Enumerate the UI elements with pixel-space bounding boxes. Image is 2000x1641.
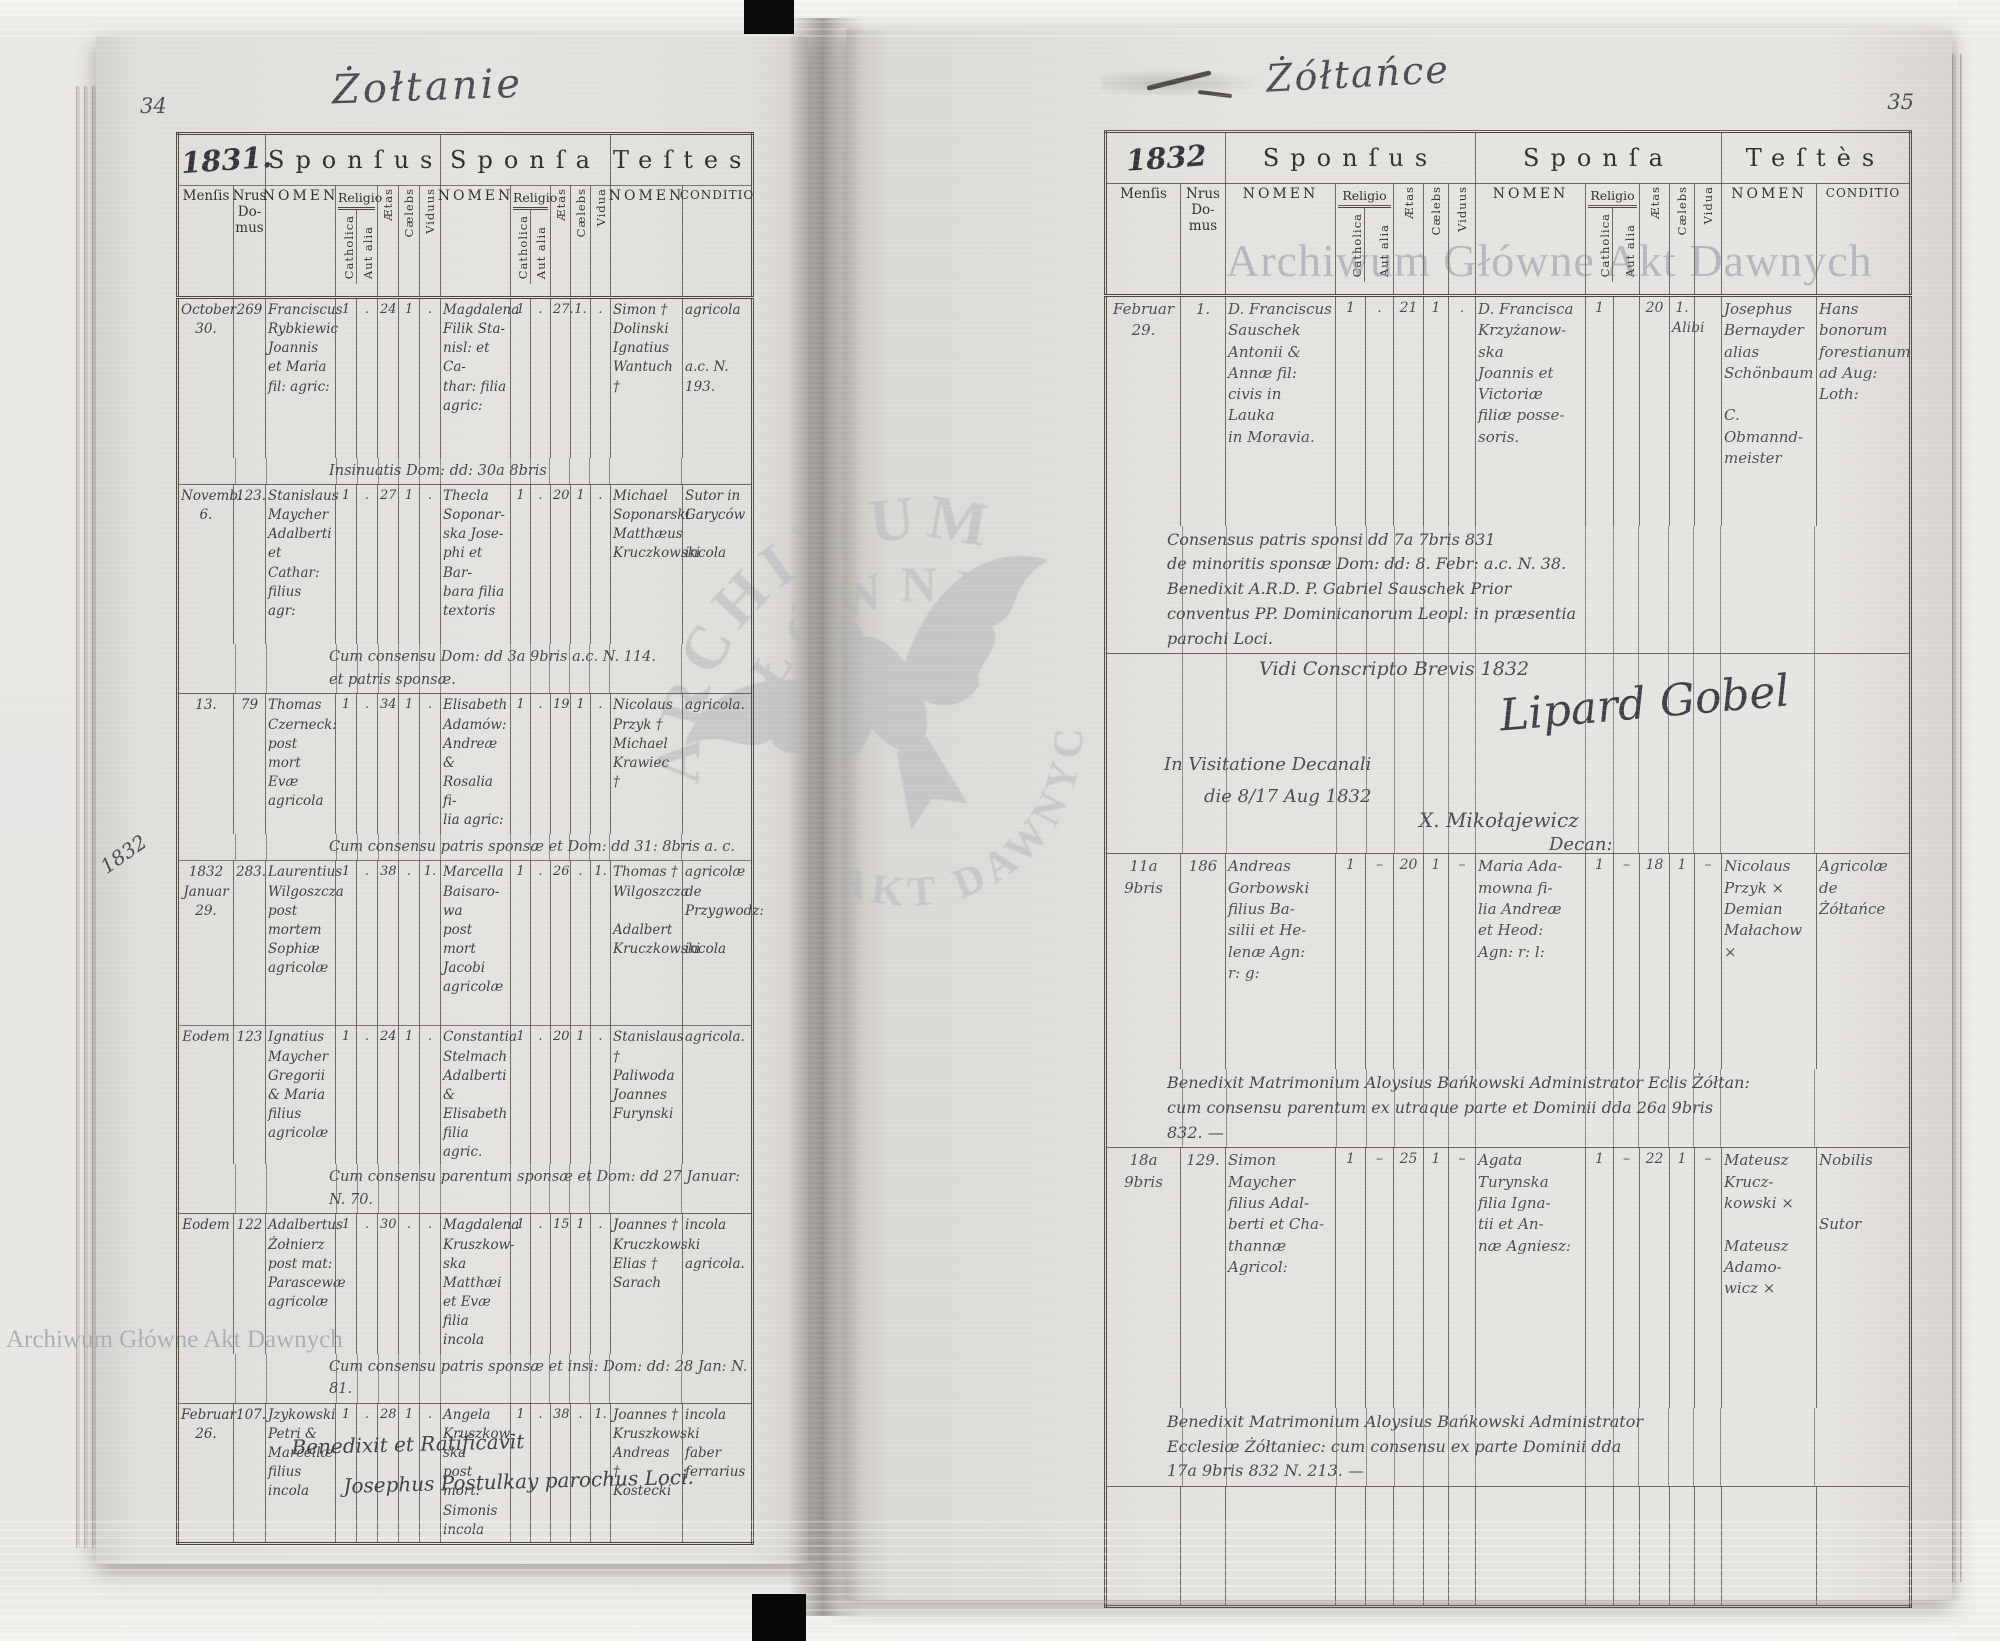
sponsus-autalia-cell: . (1366, 296, 1394, 526)
sponsa-catholica-cell: 1 (511, 484, 531, 644)
sponsus-nomen-cell: Franciscus Rybkiewic Joannis et Maria fi… (266, 298, 336, 458)
sponsa-caelebs-header: Cælebs (1670, 184, 1695, 296)
sponsus-viduus-cell: . (1449, 296, 1476, 526)
sponsa-vidua-cell: . (591, 484, 611, 644)
sponsus-group-header: Sponſus (266, 134, 441, 186)
sponsus-aetas-header: Ætas (378, 186, 399, 298)
testes-nomen-cell: Mateusz Krucz- kowski × Mateusz Adamo- w… (1722, 1148, 1817, 1408)
sponsa-aetas-cell: 20 (551, 1026, 571, 1165)
sponsa-caelebs-cell: 1 (571, 1026, 591, 1165)
sponsa-caelebs-cell: . (571, 861, 591, 1026)
testes-nomen-cell: Joannes † Kruczkowski Elias † Sarach (611, 1214, 683, 1354)
testes-nomen-cell: Josephus Bernayder alias Schönbaum C. Ob… (1722, 296, 1817, 526)
sponsa-caelebs-cell: 1 (571, 484, 591, 644)
sponsa-nomen-header: NOMEN (441, 186, 511, 298)
sponsa-autalia-cell: . (531, 484, 551, 644)
sponsa-aetas-cell: 20 (1640, 296, 1670, 526)
catholica-label: Catholica (1338, 208, 1364, 277)
sponsus-religio-header: Religio Catholica Aut alia (336, 186, 378, 298)
religio-label: Religio (1338, 186, 1391, 208)
sponsa-vidua-cell: – (1695, 1148, 1722, 1408)
group-header-row: 1832 Sponſus Sponſa Teſtès (1106, 132, 1911, 184)
sponsa-nomen-cell: Maria Ada- mowna fi- lia Andreæ et Heod:… (1476, 854, 1586, 1069)
conditio-header: CONDITIO (1817, 184, 1911, 296)
sponsa-catholica-cell: 1 (511, 1214, 531, 1354)
empty-ruled-rows (1106, 1487, 1911, 1607)
sponsus-caelebs-cell: 1 (399, 298, 420, 458)
sponsa-catholica-cell: 1 (511, 298, 531, 458)
book-page-edges-left (72, 86, 98, 1548)
sponsa-aetas-cell: 26 (551, 861, 571, 1026)
testes-group-header: Teſtes (611, 134, 753, 186)
entry-note-row: Cum consensu Dom: dd 3a 9bris a.c. N. 11… (178, 644, 753, 693)
entry-domus-cell: 129. (1181, 1148, 1226, 1408)
sponsa-autalia-cell: – (1614, 1148, 1640, 1408)
nrus-domus-header: Nrus Do- mus (234, 186, 266, 298)
sponsus-aetas-cell: 25 (1394, 1148, 1424, 1408)
catholica-label: Catholica (513, 210, 530, 279)
sponsus-nomen-cell: Adalbertus Żołnierz post mat: Parascewæ … (266, 1214, 336, 1354)
sponsus-autalia-cell: . (357, 694, 378, 834)
sponsa-nomen-cell: D. Francisca Krzyżanow- ska Joannis et V… (1476, 296, 1586, 526)
sponsa-nomen-cell: Constantia Stelmach Adalberti & Elisabet… (441, 1026, 511, 1165)
catholica-label: Catholica (338, 210, 356, 279)
sponsa-aetas-header: Ætas (551, 186, 571, 298)
sponsa-vidua-cell: . (591, 1214, 611, 1354)
sponsus-aetas-cell: 24 (378, 298, 399, 458)
sponsus-viduus-cell: . (420, 694, 441, 834)
entry-mensis-cell: October 30. (178, 298, 234, 458)
sponsa-caelebs-cell: 1 (571, 694, 591, 834)
sponsa-nomen-cell: Magdalena Filik Sta- nisl: et Ca- thar: … (441, 298, 511, 458)
sponsa-vidua-cell: 1. (591, 861, 611, 1026)
sponsus-group-header: Sponſus (1226, 132, 1476, 184)
entry-domus-cell: 123 (234, 1026, 266, 1165)
entry-domus-cell: 123. (234, 484, 266, 644)
register-entry-row: 11a 9bris186Andreas Gorbowski filius Ba-… (1106, 854, 1911, 1069)
sponsa-caelebs-header: Cælebs (571, 186, 591, 298)
marriage-register-table: 1832 Sponſus Sponſa Teſtès Menſis Nrus D… (1104, 130, 1912, 1608)
sub-header-row: Menſis Nrus Do- mus NOMEN Religio Cathol… (1106, 184, 1911, 296)
sponsa-autalia-cell: – (1614, 854, 1640, 1069)
sponsa-nomen-header: NOMEN (1476, 184, 1586, 296)
sponsa-aetas-cell: 19 (551, 694, 571, 834)
entry-domus-cell: 269 (234, 298, 266, 458)
sponsa-autalia-cell: . (531, 1214, 551, 1354)
testes-nomen-header: NOMEN (1722, 184, 1817, 296)
entry-mensis-cell: 11a 9bris (1106, 854, 1181, 1069)
register-page-right: 35 Żółtańce 1832 Sponſus Sponſa Teſtès M… (846, 28, 1952, 1600)
sponsa-religio-header: Religio Catholica Aut alia (1586, 184, 1640, 296)
sponsa-nomen-cell: Magdalena Kruszkow- ska Matthæi et Evæ f… (441, 1214, 511, 1354)
entry-note-row: Cum consensu patris sponsæ et Dom: dd 31… (178, 834, 753, 861)
entry-mensis-cell: 13. (178, 694, 234, 834)
sponsus-caelebs-cell: 1 (1424, 854, 1449, 1069)
religio-label: Religio (513, 188, 548, 210)
sponsus-catholica-cell: 1 (1336, 296, 1366, 526)
mensis-header: Menſis (1106, 184, 1181, 296)
sponsus-aetas-cell: 38 (378, 861, 399, 1026)
parish-title-handwritten: Żółtańce (1265, 47, 1451, 101)
entry-mensis-cell: Eodem (178, 1214, 234, 1354)
sponsa-religio-header: Religio Catholica Aut alia (511, 186, 551, 298)
visitation-line: die 8/17 Aug 1832 (1204, 786, 1371, 807)
conditio-cell: Sutor in Garyców incola (683, 484, 753, 644)
sponsus-aetas-cell: 34 (378, 694, 399, 834)
sponsus-catholica-cell: 1 (1336, 854, 1366, 1069)
sponsus-religio-header: Religio Catholica Aut alia (1336, 184, 1394, 296)
sponsa-vidua-cell: . (591, 298, 611, 458)
testes-nomen-cell: Michael Soponarski Matthæus Kruczkowski (611, 484, 683, 644)
religio-label: Religio (338, 188, 375, 210)
page-number: 35 (1887, 90, 1914, 114)
sponsa-group-header: Sponſa (441, 134, 611, 186)
sponsa-aetas-header: Ætas (1640, 184, 1670, 296)
register-entry-row: 1832 Januar 29.283.Laurentius Wilgoszcza… (178, 861, 753, 1026)
marriage-register-table: 1831. Sponſus Sponſa Teſtes Menſis Nrus … (176, 132, 754, 1545)
sponsus-nomen-header: NOMEN (266, 186, 336, 298)
sponsa-group-header: Sponſa (1476, 132, 1722, 184)
conditio-cell: Nobilis Sutor (1817, 1148, 1911, 1408)
conditio-cell: Hans bonorum forestianum ad Aug: Loth: (1817, 296, 1911, 526)
entry-note: Consensus patris sponsi dd 7a 7bris 831 … (1106, 526, 1911, 654)
entry-note: Cum consensu patris sponsæ et Dom: dd 31… (178, 834, 753, 861)
register-page-left: 34 Żołtanie 1832 1831. Sponſus Sponſa Te… (96, 36, 808, 1564)
visitation-block: Vidi Conscripto Brevis 1832 Lipard Gobel… (1106, 654, 1911, 854)
religio-label: Religio (1588, 186, 1637, 208)
sponsa-caelebs-cell: 1 (571, 1214, 591, 1354)
film-edge-band (1958, 0, 2000, 1641)
sponsus-caelebs-cell: . (399, 1214, 420, 1354)
group-header-row: 1831. Sponſus Sponſa Teſtes (178, 134, 753, 186)
sponsus-viduus-cell: 1. (420, 861, 441, 1026)
sponsus-viduus-cell: – (1449, 854, 1476, 1069)
entry-domus-cell: 1. (1181, 296, 1226, 526)
mensis-header: Menſis (178, 186, 234, 298)
conditio-cell: agricola. (683, 1026, 753, 1165)
sponsa-caelebs-cell: 1. Alibi (1670, 296, 1695, 526)
sponsa-nomen-cell: Marcella Baisaro- wa post mort Jacobi ag… (441, 861, 511, 1026)
year-cell: 1831. (178, 134, 266, 186)
sponsus-caelebs-cell: 1 (1424, 296, 1449, 526)
entry-note: Cum consensu Dom: dd 3a 9bris a.c. N. 11… (178, 644, 753, 693)
sponsus-nomen-cell: Stanislaus Maycher Adalberti et Cathar: … (266, 484, 336, 644)
sponsa-caelebs-cell: 1. (571, 298, 591, 458)
aut-alia-label: Aut alia (357, 221, 375, 279)
sponsa-aetas-cell: 18 (1640, 854, 1670, 1069)
sponsus-aetas-header: Ætas (1394, 184, 1424, 296)
testes-nomen-cell: Simon † Dolinski Ignatius Wantuch † (611, 298, 683, 458)
sponsa-aetas-cell: 22 (1640, 1148, 1670, 1408)
register-entry-row: Eodem123Ignatius Maycher Gregorii & Mari… (178, 1026, 753, 1165)
testes-nomen-cell: Nicolaus Przyk × Demian Małachow × (1722, 854, 1817, 1069)
sponsa-catholica-cell: 1 (1586, 296, 1614, 526)
sponsus-nomen-header: NOMEN (1226, 184, 1336, 296)
entry-domus-cell: 122 (234, 1214, 266, 1354)
sponsa-catholica-cell: 1 (511, 694, 531, 834)
visitation-line: X. Mikołajewicz (1419, 808, 1579, 832)
ink-smudge (1101, 68, 1271, 98)
entry-mensis-cell: Februar 29. (1106, 296, 1181, 526)
sponsus-nomen-cell: Laurentius Wilgoszcza post mortem Sophiæ… (266, 861, 336, 1026)
sponsus-caelebs-cell: 1 (1424, 1148, 1449, 1408)
sub-header-row: Menſis Nrus Do- mus NOMEN Religio Cathol… (178, 186, 753, 298)
sponsus-autalia-cell: . (357, 1026, 378, 1165)
sponsus-nomen-cell: Andreas Gorbowski filius Ba- silii et He… (1226, 854, 1336, 1069)
entry-note: Cum consensu patris sponsæ et insi: Dom:… (178, 1354, 753, 1403)
sponsa-autalia-cell (1614, 296, 1640, 526)
visitation-line: In Visitatione Decanali (1164, 754, 1371, 775)
entry-note: Benedixit Matrimonium Aloysius Bańkowski… (1106, 1408, 1911, 1487)
entry-note: Benedixit Matrimonium Aloysius Bańkowski… (1106, 1069, 1911, 1148)
margin-year-note: 1832 (96, 830, 151, 879)
scanned-marriage-register-spread: 34 Żołtanie 1832 1831. Sponſus Sponſa Te… (0, 0, 2000, 1641)
book-gutter-shadow (788, 18, 864, 1616)
sponsa-vidua-header: Vidua (591, 186, 611, 298)
sponsus-nomen-cell: Thomas Czerneck: post mort Evæ agricola (266, 694, 336, 834)
sponsus-autalia-cell: . (357, 484, 378, 644)
testes-label: Teſtes (613, 146, 752, 174)
testes-nomen-cell: Nicolaus Przyk † Michael Krawiec † (611, 694, 683, 834)
entry-domus-cell: 107. (234, 1403, 266, 1543)
sponsus-nomen-cell: Ignatius Maycher Gregorii & Maria filius… (266, 1026, 336, 1165)
sponsus-aetas-cell: 24 (378, 1026, 399, 1165)
sponsus-catholica-cell: 1 (1336, 1148, 1366, 1408)
sponsus-catholica-cell: 1 (336, 694, 357, 834)
year-handwritten: 1831. (180, 140, 273, 180)
sponsus-autalia-cell: . (357, 861, 378, 1026)
sponsa-autalia-cell: . (531, 694, 551, 834)
sponsa-vidua-header: Vidua (1695, 184, 1722, 296)
sponsa-vidua-cell: . (591, 1026, 611, 1165)
sponsus-aetas-cell: 20 (1394, 854, 1424, 1069)
sponsa-autalia-cell: . (531, 1026, 551, 1165)
sponsus-catholica-cell: 1 (336, 1026, 357, 1165)
sponsa-vidua-cell: – (1695, 854, 1722, 1069)
conditio-cell: agricolæ de Przygwodz: incola (683, 861, 753, 1026)
film-tape-mark-bottom (752, 1594, 806, 1641)
sponsa-catholica-cell: 1 (1586, 1148, 1614, 1408)
entry-note-row: Cum consensu parentum sponsæ et Dom: dd … (178, 1164, 753, 1213)
entry-note: Insinuatis Dom: dd: 30a 8bris (178, 458, 753, 485)
sponsus-aetas-cell: 30 (378, 1214, 399, 1354)
sponsa-caelebs-cell: 1 (1670, 1148, 1695, 1408)
conditio-cell: agricola. (683, 694, 753, 834)
entry-mensis-cell: Novemb. 6. (178, 484, 234, 644)
register-entry-row: 13.79Thomas Czerneck: post mort Evæ agri… (178, 694, 753, 834)
conditio-header: CONDITIO (683, 186, 753, 298)
entry-mensis-cell: Eodem (178, 1026, 234, 1165)
aut-alia-label: Aut alia (1365, 219, 1391, 277)
entry-domus-cell: 186 (1181, 854, 1226, 1069)
sponsa-caelebs-cell: 1 (1670, 854, 1695, 1069)
sponsa-aetas-cell: 15 (551, 1214, 571, 1354)
sponsa-nomen-cell: Thecla Soponar- ska Jose- phi et Bar- ba… (441, 484, 511, 644)
sponsa-aetas-cell: 27. (551, 298, 571, 458)
sponsa-vidua-cell: . (591, 694, 611, 834)
sponsus-viduus-cell: . (420, 1026, 441, 1165)
entry-note-row: Insinuatis Dom: dd: 30a 8bris (178, 458, 753, 485)
sponsa-aetas-cell: 20 (551, 484, 571, 644)
sponsus-aetas-cell: 21 (1394, 296, 1424, 526)
sponsus-nomen-cell: D. Franciscus Sauschek Antonii & Annæ fi… (1226, 296, 1336, 526)
testes-nomen-cell: Stanislaus † Paliwoda Joannes Furynski (611, 1026, 683, 1165)
sponsus-caelebs-cell: . (399, 861, 420, 1026)
testes-group-header: Teſtès (1722, 132, 1911, 184)
visitation-line: Vidi Conscripto Brevis 1832 (1259, 658, 1529, 680)
sponsus-viduus-cell: . (420, 1214, 441, 1354)
sponsus-caelebs-cell: 1 (399, 1026, 420, 1165)
entry-note-row: Consensus patris sponsi dd 7a 7bris 831 … (1106, 526, 1911, 654)
entry-mensis-cell: 1832 Januar 29. (178, 861, 234, 1026)
entry-note-row: Benedixit Matrimonium Aloysius Bańkowski… (1106, 1408, 1911, 1487)
entry-note-row: Benedixit Matrimonium Aloysius Bańkowski… (1106, 1069, 1911, 1148)
aut-alia-label: Aut alia (531, 221, 548, 279)
testes-nomen-header: NOMEN (611, 186, 683, 298)
sponsa-catholica-cell: 1 (1586, 854, 1614, 1069)
nrus-domus-header: Nrus Do- mus (1181, 184, 1226, 296)
benediction-footer: Benedixit et Ratificavit Josephus Postul… (291, 1417, 694, 1507)
sponsa-nomen-cell: Elisabeth Adamów: Andreæ & Rosalia fi- l… (441, 694, 511, 834)
sponsa-autalia-cell: . (531, 861, 551, 1026)
register-entry-row: 18a 9bris129.Simon Maycher filius Adal- … (1106, 1148, 1911, 1408)
aut-alia-label: Aut alia (1613, 219, 1637, 277)
year-cell: 1832 (1106, 132, 1226, 184)
entry-domus-cell: 79 (234, 694, 266, 834)
sponsus-caelebs-cell: 1 (399, 484, 420, 644)
conditio-cell: Agricolæ de Żółtańce (1817, 854, 1911, 1069)
sponsa-nomen-cell: Agata Turynska filia Igna- tii et An- næ… (1476, 1148, 1586, 1408)
sponsus-aetas-cell: 27 (378, 484, 399, 644)
register-entry-row: Novemb. 6.123.Stanislaus Maycher Adalber… (178, 484, 753, 644)
year-handwritten: 1832 (1125, 138, 1208, 178)
page-number: 34 (140, 94, 167, 118)
register-entry-row: October 30.269Franciscus Rybkiewic Joann… (178, 298, 753, 458)
sponsus-caelebs-cell: 1 (399, 694, 420, 834)
entry-mensis-cell: Februar 26. (178, 1403, 234, 1543)
sponsus-catholica-cell: 1 (336, 298, 357, 458)
testes-label: Teſtès (1746, 144, 1885, 172)
sponsus-autalia-cell: . (357, 298, 378, 458)
catholica-label: Catholica (1588, 208, 1612, 277)
sponsa-autalia-cell: . (531, 298, 551, 458)
conditio-cell: agricola a.c. N. 193. (683, 298, 753, 458)
visitation-line: Decan: (1549, 834, 1613, 855)
sponsus-caelebs-header: Cælebs (399, 186, 420, 298)
sponsus-caelebs-header: Cælebs (1424, 184, 1449, 296)
visitation-signature: Lipard Gobel (1497, 666, 1791, 742)
register-entry-row: Februar 29.1.D. Franciscus Sauschek Anto… (1106, 296, 1911, 526)
sponsus-catholica-cell: 1 (336, 484, 357, 644)
sponsa-catholica-cell: 1 (511, 1026, 531, 1165)
parish-title-handwritten: Żołtanie (331, 61, 523, 114)
conditio-cell: incola agricola. (683, 1214, 753, 1354)
film-tape-mark-top (744, 0, 794, 34)
sponsus-nomen-cell: Simon Maycher filius Adal- berti et Cha-… (1226, 1148, 1336, 1408)
sponsus-autalia-cell: – (1366, 1148, 1394, 1408)
sponsus-viduus-cell: . (420, 298, 441, 458)
entry-note-row: Cum consensu patris sponsæ et insi: Dom:… (178, 1354, 753, 1403)
testes-nomen-cell: Thomas † Wilgoszcza Adalbert Kruczkowski (611, 861, 683, 1026)
sponsus-autalia-cell: – (1366, 854, 1394, 1069)
sponsa-catholica-cell: 1 (511, 861, 531, 1026)
sponsus-viduus-header: Viduus (1449, 184, 1476, 296)
entry-mensis-cell: 18a 9bris (1106, 1148, 1181, 1408)
entry-domus-cell: 283. (234, 861, 266, 1026)
sponsus-viduus-cell: . (420, 484, 441, 644)
sponsus-autalia-cell: . (357, 1214, 378, 1354)
entry-note: Cum consensu parentum sponsæ et Dom: dd … (178, 1164, 753, 1213)
sponsus-viduus-cell: – (1449, 1148, 1476, 1408)
register-entry-row: Eodem122Adalbertus Żołnierz post mat: Pa… (178, 1214, 753, 1354)
